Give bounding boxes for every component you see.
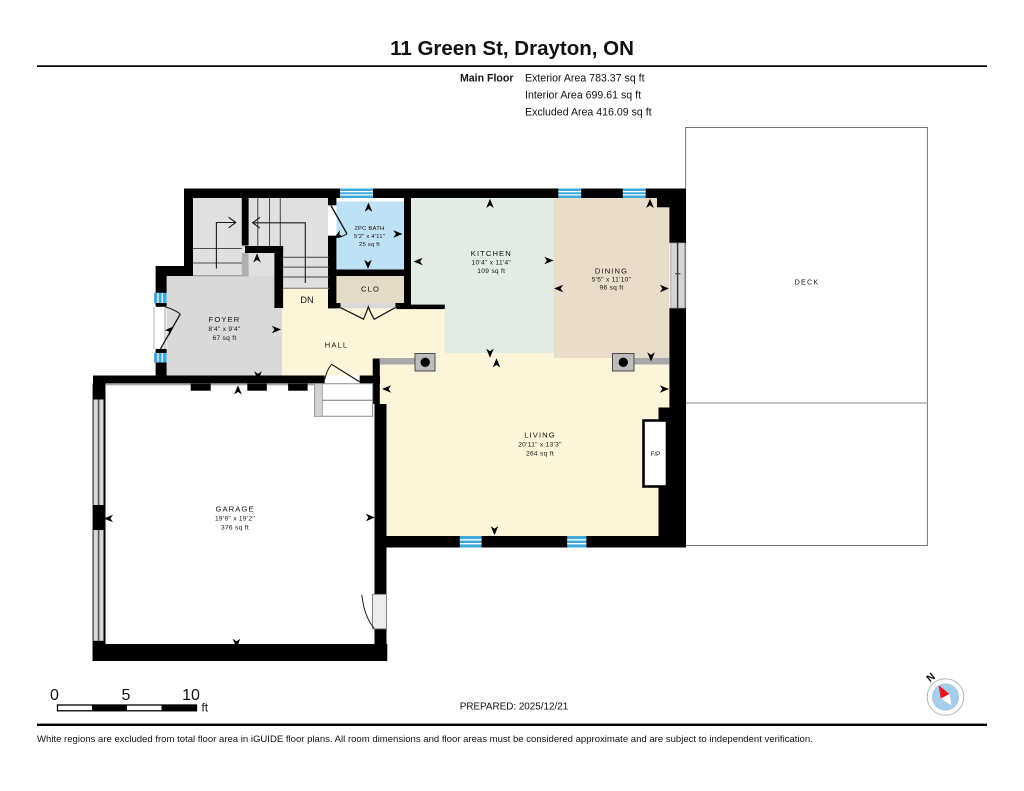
svg-text:LIVING: LIVING	[524, 431, 556, 440]
svg-text:5'2" x 4'11": 5'2" x 4'11"	[354, 234, 385, 240]
svg-text:KITCHEN: KITCHEN	[471, 249, 512, 258]
svg-text:FOYER: FOYER	[209, 315, 241, 324]
svg-text:25 sq ft: 25 sq ft	[359, 242, 380, 248]
svg-text:HALL: HALL	[325, 341, 348, 350]
svg-text:264 sq ft: 264 sq ft	[526, 451, 554, 458]
svg-text:White regions are excluded fro: White regions are excluded from total fl…	[37, 734, 813, 745]
svg-text:CLO: CLO	[361, 285, 380, 294]
svg-text:GARAGE: GARAGE	[215, 505, 254, 514]
svg-text:Exterior Area 783.37 sq ft: Exterior Area 783.37 sq ft	[525, 73, 645, 85]
svg-text:109 sq ft: 109 sq ft	[477, 268, 505, 275]
svg-text:5'5" x 11'10": 5'5" x 11'10"	[592, 277, 632, 284]
svg-text:Interior Area 699.61 sq ft: Interior Area 699.61 sq ft	[525, 90, 641, 102]
svg-text:19'9" x 19'2": 19'9" x 19'2"	[215, 516, 255, 523]
svg-text:10'4" x 11'4": 10'4" x 11'4"	[472, 260, 512, 267]
svg-text:20'11" x 13'3": 20'11" x 13'3"	[518, 442, 562, 449]
svg-text:8'4" x 9'4": 8'4" x 9'4"	[208, 326, 240, 333]
svg-text:10: 10	[182, 687, 200, 704]
svg-text:F/P: F/P	[651, 451, 661, 458]
svg-text:ft: ft	[202, 702, 209, 715]
svg-text:96 sq ft: 96 sq ft	[599, 285, 623, 292]
svg-text:PREPARED: 2025/12/21: PREPARED: 2025/12/21	[460, 702, 569, 713]
svg-text:DINING: DINING	[595, 267, 628, 276]
svg-text:Excluded Area 416.09 sq ft: Excluded Area 416.09 sq ft	[525, 107, 652, 119]
svg-text:0: 0	[50, 687, 59, 704]
svg-text:DN: DN	[300, 295, 313, 305]
svg-text:Main Floor: Main Floor	[460, 73, 514, 85]
svg-text:DECK: DECK	[795, 278, 820, 287]
svg-text:2PC BATH: 2PC BATH	[355, 226, 385, 232]
svg-text:67 sq ft: 67 sq ft	[212, 335, 236, 342]
svg-text:376 sq ft: 376 sq ft	[221, 525, 249, 532]
svg-text:5: 5	[122, 687, 131, 704]
svg-text:11 Green St, Drayton, ON: 11 Green St, Drayton, ON	[390, 37, 634, 60]
